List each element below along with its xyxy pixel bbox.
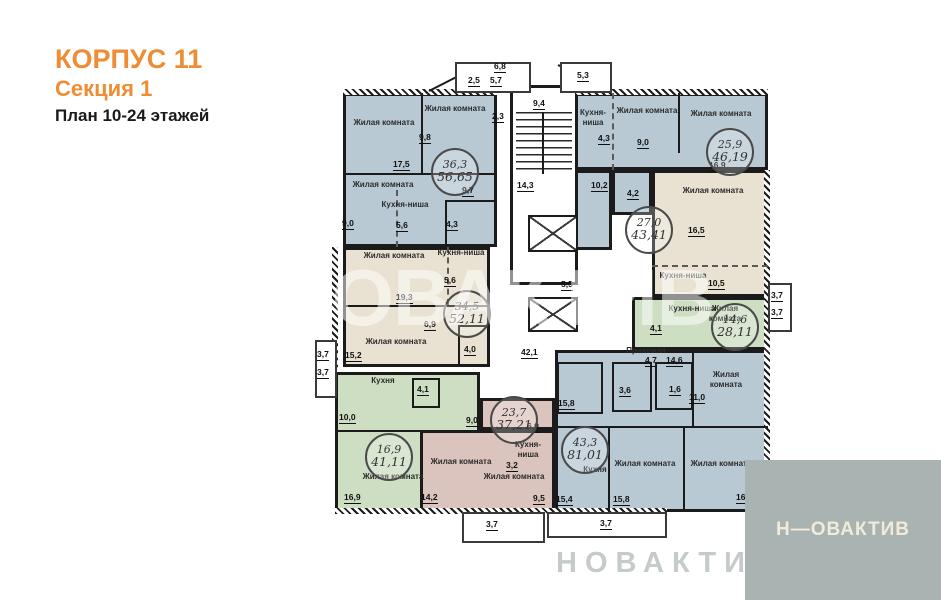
developer-logo-text: Н—ОВАКТИВ <box>776 519 910 541</box>
stairs-divider <box>542 112 544 174</box>
building-title: КОРПУС 11 <box>55 44 209 75</box>
dim-label: 2,5 <box>468 76 480 87</box>
room-area: 3,2 <box>506 461 518 472</box>
room-label: Жилая комната <box>690 109 752 119</box>
room-label: Жилая комната <box>616 106 678 116</box>
wall <box>335 430 420 432</box>
room-label: Жилая комната <box>364 337 428 347</box>
bathroom-box <box>612 362 652 412</box>
floor-plan-page: КОРПУС 11 Секция 1 План 10-24 этажей <box>0 0 941 600</box>
room-area: 9,0 <box>342 219 354 230</box>
room-label: Кухня-ниша <box>381 200 429 210</box>
room-area: 10,0 <box>339 413 356 424</box>
dim-label: 6,9 <box>424 320 436 331</box>
room-label: Жилая комната <box>682 186 744 196</box>
room-area: 16,9 <box>344 493 361 504</box>
room-label: Жилая комната <box>362 251 426 261</box>
room-area: 11,0 <box>689 393 705 404</box>
room-label: Кухня <box>358 376 408 386</box>
niche-partition <box>396 190 398 247</box>
room-area: 19,3 <box>396 293 413 304</box>
dim-label: 1,6 <box>669 385 681 396</box>
room-area: 15,2 <box>345 351 362 362</box>
wall <box>683 428 685 512</box>
dim-label: 15,8 <box>558 399 575 410</box>
room-area: 17,5 <box>393 160 410 171</box>
page-title: КОРПУС 11 Секция 1 План 10-24 этажей <box>55 44 209 127</box>
dim-label: 4,3 <box>446 220 458 231</box>
dim-label: 3,7 <box>771 291 783 302</box>
room-label: Жилая комната <box>352 118 416 128</box>
apartment-area-circle: 36,3 56,65 <box>431 148 479 196</box>
apartment-area-circle: 25,9 46,19 <box>706 128 754 176</box>
elevator-shaft-icon <box>528 215 578 252</box>
total-area: 52,11 <box>449 312 485 326</box>
room-area: 15,4 <box>556 495 573 506</box>
room-label: Жилая комната <box>424 104 486 114</box>
total-area: 43,41 <box>631 228 667 242</box>
room-area: 15,8 <box>613 495 630 506</box>
dim-label: 9,0 <box>466 416 478 427</box>
dim-label: 3,7 <box>317 368 329 379</box>
dim-label: 4,2 <box>627 189 639 200</box>
niche-partition <box>612 93 614 170</box>
room-area: 10,5 <box>708 279 725 290</box>
elevator-shaft-icon <box>528 297 578 332</box>
room-area: 9,5 <box>533 494 545 505</box>
section-title: Секция 1 <box>55 75 209 104</box>
total-area: 56,65 <box>437 170 473 184</box>
room-area: 5,6 <box>396 221 408 232</box>
dim-label: 10,2 <box>591 181 608 192</box>
developer-logo: Н—ОВАКТИВ <box>745 460 941 600</box>
total-area: 81,01 <box>567 448 603 462</box>
dim-label: 14,3 <box>517 181 534 192</box>
dim-label: 3,7 <box>771 308 783 319</box>
dim-label: 3,7 <box>486 520 498 531</box>
plan-subtitle: План 10-24 этажей <box>55 104 209 128</box>
room-area: 5,6 <box>444 276 456 287</box>
total-area: 28,11 <box>717 325 753 339</box>
total-area: 37,21 <box>496 418 532 432</box>
stairs-icon <box>516 112 572 174</box>
dim-label: 5,3 <box>577 71 589 82</box>
apartment-area-circle: 16,9 41,11 <box>365 433 413 481</box>
room-area: 9,8 <box>419 133 431 144</box>
room-label: Жилая комната <box>429 457 493 467</box>
room-label: Жилая комната <box>690 459 752 469</box>
room-label: Жилая комната <box>698 370 754 389</box>
room-area: 4,1 <box>650 324 662 335</box>
room-label: Кухня-ниша <box>437 248 485 258</box>
room-area: 14,2 <box>421 493 438 504</box>
apartment-area-circle: 27,0 43,41 <box>625 206 673 254</box>
dim-label: 3,7 <box>600 519 612 530</box>
dim-label: 5,5 <box>561 280 573 291</box>
dim-label: 2,3 <box>492 112 504 123</box>
room-area: 9,0 <box>637 138 649 149</box>
apartment-area-circle: 34,5 52,11 <box>443 290 491 338</box>
room-label: Жилая комната <box>482 472 546 482</box>
dim-label: 14,6 <box>666 356 683 367</box>
dim-label: 5,7 <box>490 76 502 87</box>
room-label: Жилая комната <box>352 180 414 190</box>
wall <box>678 93 680 153</box>
apartment-area-circle: 14,6 28,11 <box>711 303 759 351</box>
niche-partition <box>652 265 768 267</box>
room-label: Жилая комната <box>614 459 676 469</box>
room-area: 4,7 <box>645 356 657 367</box>
dim-label: 3,7 <box>317 350 329 361</box>
room-label: Кухня-ниша <box>570 108 616 127</box>
dim-label: 4,0 <box>464 345 476 356</box>
room-area: 16,5 <box>688 226 705 237</box>
dim-label: 4,1 <box>417 385 429 396</box>
total-area: 46,19 <box>712 150 748 164</box>
dim-label: 42,1 <box>521 348 538 359</box>
room-area: 4,3 <box>598 134 610 145</box>
apartment-area-circle: 23,7 37,21 <box>490 396 538 444</box>
total-area: 41,11 <box>371 455 407 469</box>
apartment-area-circle: 43,3 81,01 <box>561 426 609 474</box>
dim-label: 3,6 <box>619 386 631 397</box>
balcony <box>462 512 545 543</box>
room-label: Кухня-ниша <box>658 271 708 281</box>
dim-label: 9,4 <box>533 99 545 110</box>
dim-label: 6,8 <box>494 62 506 73</box>
